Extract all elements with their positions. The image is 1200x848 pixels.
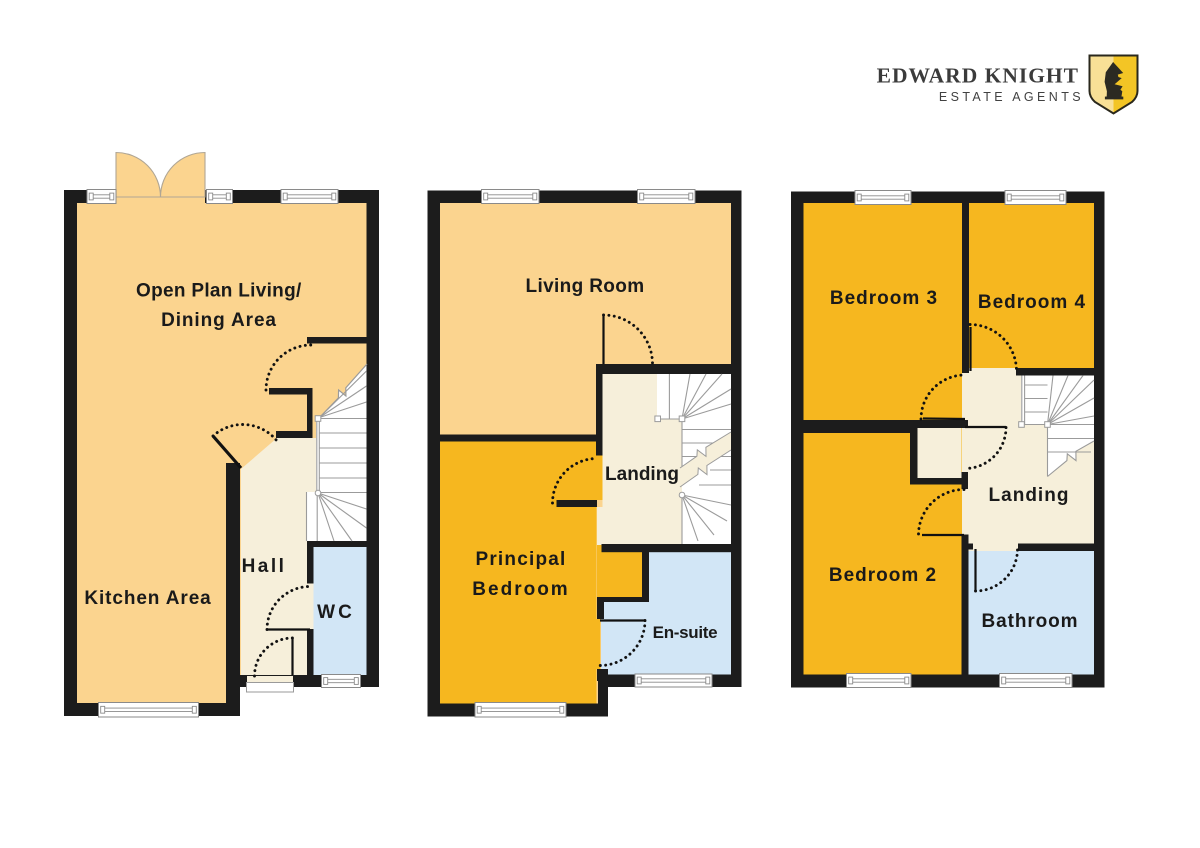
svg-text:EDWARD KNIGHT: EDWARD KNIGHT [877,64,1079,88]
svg-text:Landing: Landing [989,485,1070,506]
svg-text:Bathroom: Bathroom [982,611,1079,632]
svg-text:Hall: Hall [242,556,287,577]
svg-text:Bedroom: Bedroom [472,579,569,600]
svg-text:Bedroom 2: Bedroom 2 [829,565,937,586]
svg-text:ESTATE AGENTS: ESTATE AGENTS [939,90,1084,104]
svg-text:Bedroom 3: Bedroom 3 [830,288,938,309]
svg-text:Principal: Principal [475,549,566,570]
svg-text:Living Room: Living Room [526,276,645,297]
svg-text:Open Plan Living/: Open Plan Living/ [136,281,302,302]
svg-text:Dining Area: Dining Area [161,310,277,331]
svg-text:En-suite: En-suite [653,623,718,642]
svg-text:WC: WC [317,602,355,623]
svg-text:Bedroom 4: Bedroom 4 [978,292,1086,313]
svg-text:Kitchen Area: Kitchen Area [84,588,211,609]
svg-text:Landing: Landing [605,464,679,485]
